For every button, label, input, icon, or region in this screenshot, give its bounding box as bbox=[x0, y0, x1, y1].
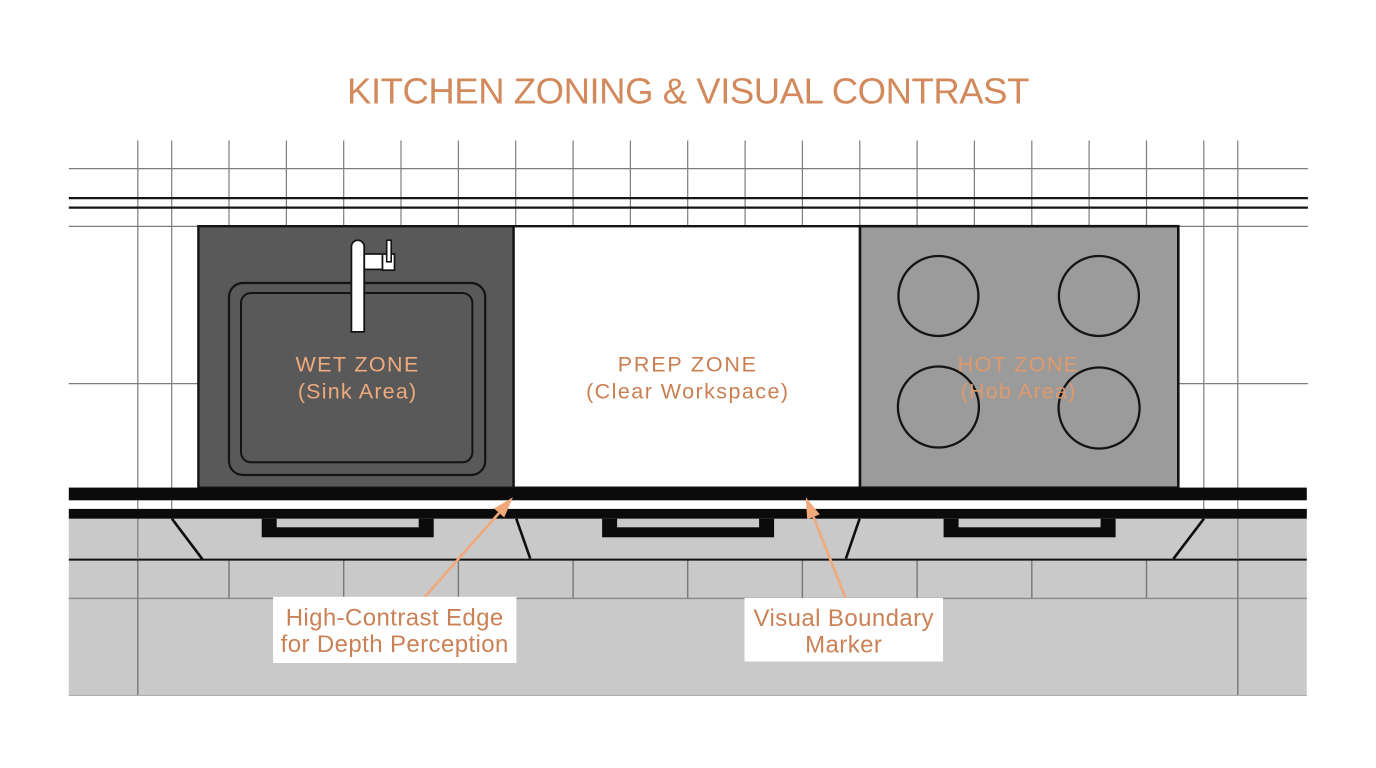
svg-text:Visual Boundary: Visual Boundary bbox=[754, 605, 934, 632]
svg-text:PREP ZONE: PREP ZONE bbox=[618, 353, 758, 377]
svg-text:(Sink Area): (Sink Area) bbox=[298, 380, 418, 404]
svg-text:HOT ZONE: HOT ZONE bbox=[958, 353, 1080, 377]
svg-text:for Depth Perception: for Depth Perception bbox=[281, 631, 509, 658]
svg-text:High-Contrast Edge: High-Contrast Edge bbox=[286, 605, 504, 632]
svg-text:(Hob Area): (Hob Area) bbox=[961, 380, 1077, 404]
svg-text:Marker: Marker bbox=[805, 632, 882, 659]
svg-text:(Clear Workspace): (Clear Workspace) bbox=[586, 380, 789, 404]
svg-text:WET ZONE: WET ZONE bbox=[295, 353, 419, 377]
svg-text:KITCHEN ZONING & VISUAL CONTRA: KITCHEN ZONING & VISUAL CONTRAST bbox=[347, 70, 1029, 111]
